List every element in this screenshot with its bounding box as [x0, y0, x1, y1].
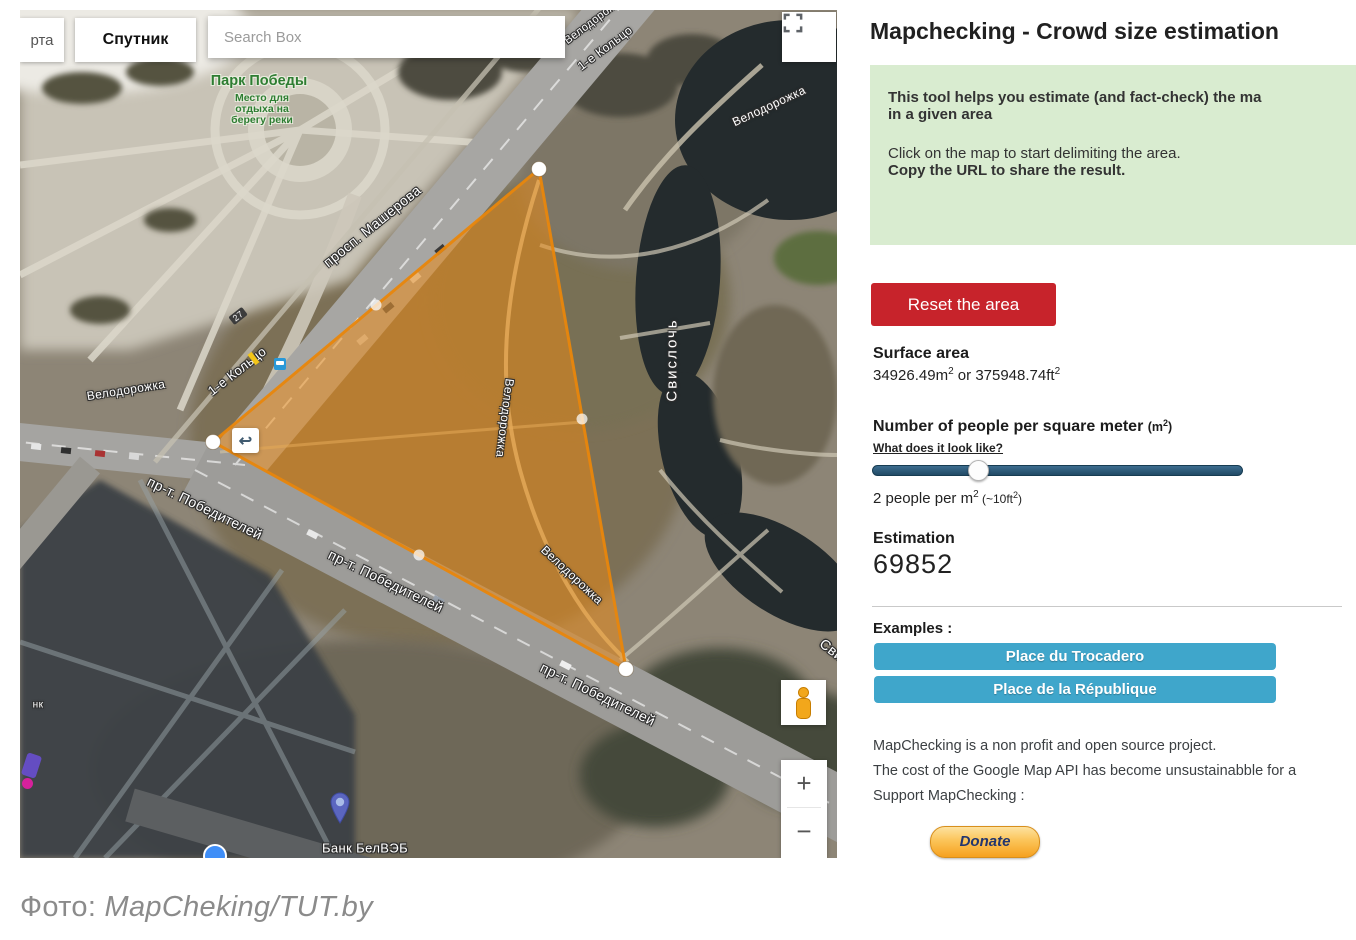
density-slider[interactable] — [872, 465, 1243, 476]
park-sublabel: берегу реки — [231, 114, 293, 126]
footer-line-3: Support MapChecking : — [873, 788, 1025, 804]
pegman-icon-body — [796, 698, 811, 719]
density-heading: Number of people per square meter (m2) — [873, 418, 1172, 436]
surface-area-value: 34926.49m2 or 375948.74ft2 — [873, 366, 1060, 384]
river-label-svisloch: Свислочь — [664, 318, 681, 401]
info-line-1: This tool helps you estimate (and fact-c… — [888, 89, 1338, 106]
fullscreen-icon — [782, 12, 804, 34]
zoom-control: + − — [781, 760, 827, 858]
surface-area-heading: Surface area — [873, 345, 969, 363]
bank-pin-icon[interactable] — [329, 792, 351, 824]
undo-icon: ↩ — [239, 431, 252, 451]
transit-stop-icon[interactable] — [274, 358, 286, 370]
polygon-midpoint[interactable] — [577, 414, 588, 425]
edge-label-nk: нк — [33, 700, 44, 711]
polygon-midpoint[interactable] — [414, 550, 425, 561]
map-viewport[interactable]: Парк Победы Место для отдыха на берегу р… — [20, 10, 837, 858]
info-line-3: Click on the map to start delimiting the… — [888, 145, 1338, 162]
tab-map-partial[interactable]: рта — [20, 18, 64, 62]
zoom-out-button[interactable]: − — [781, 808, 827, 855]
magenta-poi-icon — [22, 778, 33, 789]
zoom-in-button[interactable]: + — [781, 760, 827, 807]
satellite-imagery — [20, 10, 837, 858]
fullscreen-button[interactable] — [782, 12, 836, 62]
examples-heading: Examples : — [873, 620, 952, 637]
info-box: This tool helps you estimate (and fact-c… — [870, 65, 1356, 245]
polygon-vertex[interactable] — [532, 162, 547, 177]
polygon-vertex[interactable] — [619, 662, 634, 677]
pegman-button[interactable] — [781, 680, 826, 725]
caption-prefix: Фото: — [20, 891, 105, 923]
sidebar-panel: Mapchecking - Crowd size estimation This… — [845, 0, 1356, 872]
poi-label-bank: Банк БелВЭБ — [322, 841, 408, 856]
polygon-midpoint[interactable] — [371, 300, 382, 311]
park-label: Парк Победы — [211, 73, 308, 89]
density-slider-thumb[interactable] — [968, 460, 989, 481]
footer-line-1: MapChecking is a non profit and open sou… — [873, 738, 1216, 754]
density-value: 2 people per m2 (~10ft2) — [873, 489, 1022, 507]
footer-line-2: The cost of the Google Map API has becom… — [873, 763, 1296, 779]
info-line-4: Copy the URL to share the result. — [888, 162, 1338, 179]
example-trocadero-button[interactable]: Place du Trocadero — [874, 643, 1276, 670]
pegman-icon — [798, 687, 809, 698]
info-line-2: in a given area — [888, 106, 1338, 123]
polygon-vertex[interactable] — [206, 435, 221, 450]
reset-area-button[interactable]: Reset the area — [871, 283, 1056, 326]
example-republique-button[interactable]: Place de la République — [874, 676, 1276, 703]
search-input[interactable] — [208, 16, 565, 58]
estimation-heading: Estimation — [873, 530, 955, 548]
photo-caption: Фото: MapCheking/TUT.by — [20, 891, 373, 924]
page-title: Mapchecking - Crowd size estimation — [870, 18, 1279, 45]
caption-credit: MapCheking/TUT.by — [105, 891, 373, 923]
divider — [872, 606, 1342, 607]
what-does-it-look-like-link[interactable]: What does it look like? — [873, 441, 1003, 455]
undo-vertex-button[interactable]: ↩ — [232, 428, 259, 453]
page: Парк Победы Место для отдыха на берегу р… — [0, 0, 1356, 940]
donate-button[interactable]: Donate — [930, 826, 1040, 858]
tab-satellite[interactable]: Спутник — [75, 18, 196, 62]
estimation-value: 69852 — [873, 549, 953, 580]
